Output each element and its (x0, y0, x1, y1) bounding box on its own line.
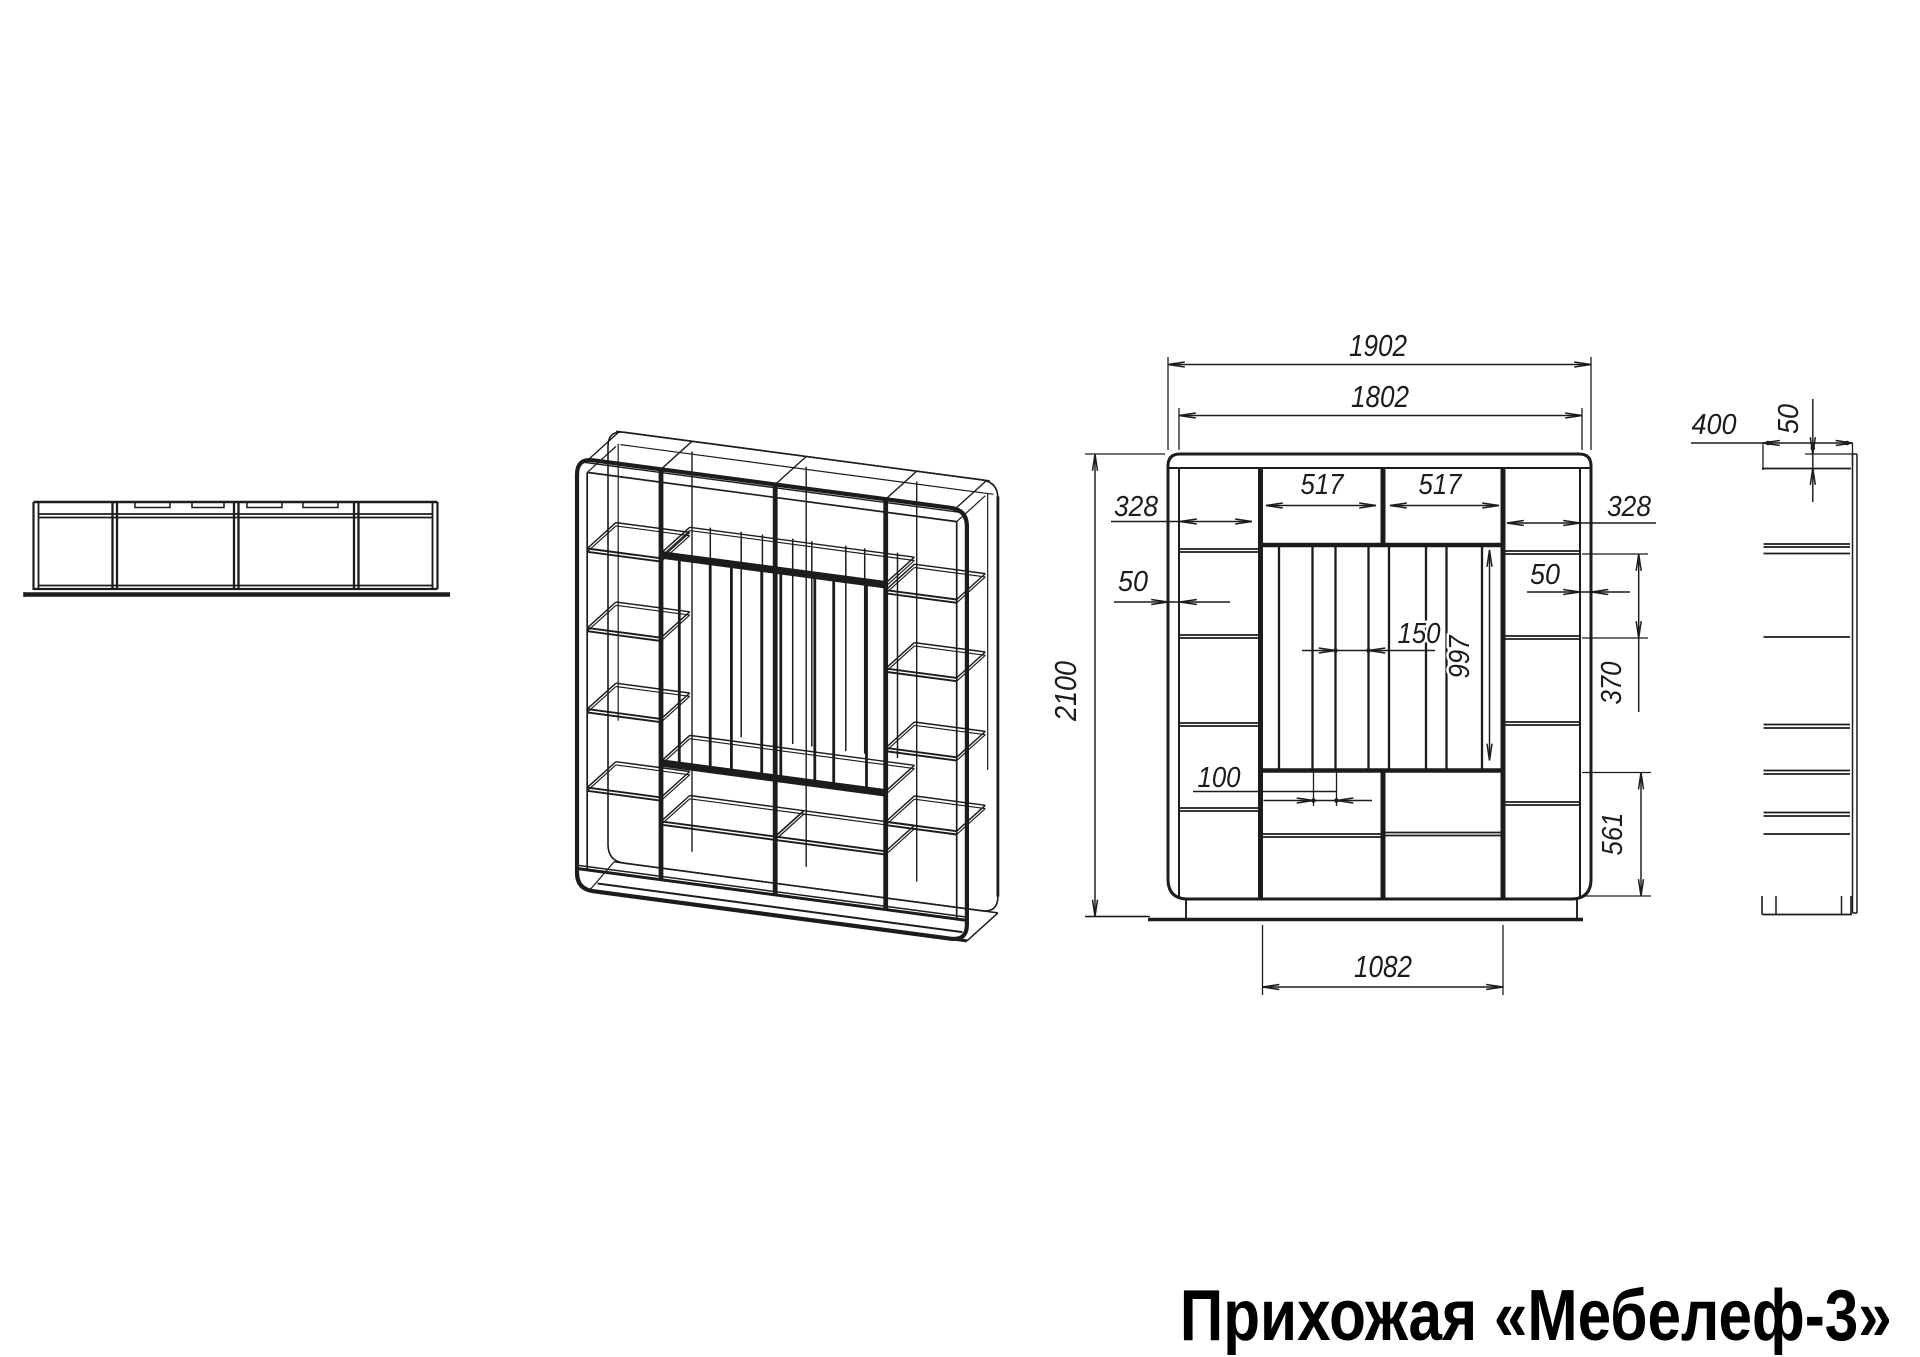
svg-text:400: 400 (1692, 409, 1737, 441)
svg-text:997: 997 (1444, 634, 1476, 679)
svg-text:1802: 1802 (1351, 379, 1409, 414)
svg-text:50: 50 (1530, 559, 1560, 591)
svg-text:328: 328 (1607, 491, 1651, 523)
svg-text:150: 150 (1398, 618, 1441, 650)
svg-text:1902: 1902 (1349, 328, 1407, 363)
svg-text:561: 561 (1597, 813, 1629, 856)
svg-text:517: 517 (1301, 469, 1346, 501)
svg-text:517: 517 (1419, 469, 1464, 501)
svg-text:370: 370 (1596, 662, 1628, 705)
svg-text:2100: 2100 (1048, 661, 1083, 722)
svg-text:50: 50 (1773, 404, 1805, 434)
svg-text:328: 328 (1114, 491, 1158, 523)
svg-text:100: 100 (1198, 762, 1241, 794)
svg-text:1082: 1082 (1354, 949, 1412, 984)
svg-text:50: 50 (1118, 566, 1148, 598)
